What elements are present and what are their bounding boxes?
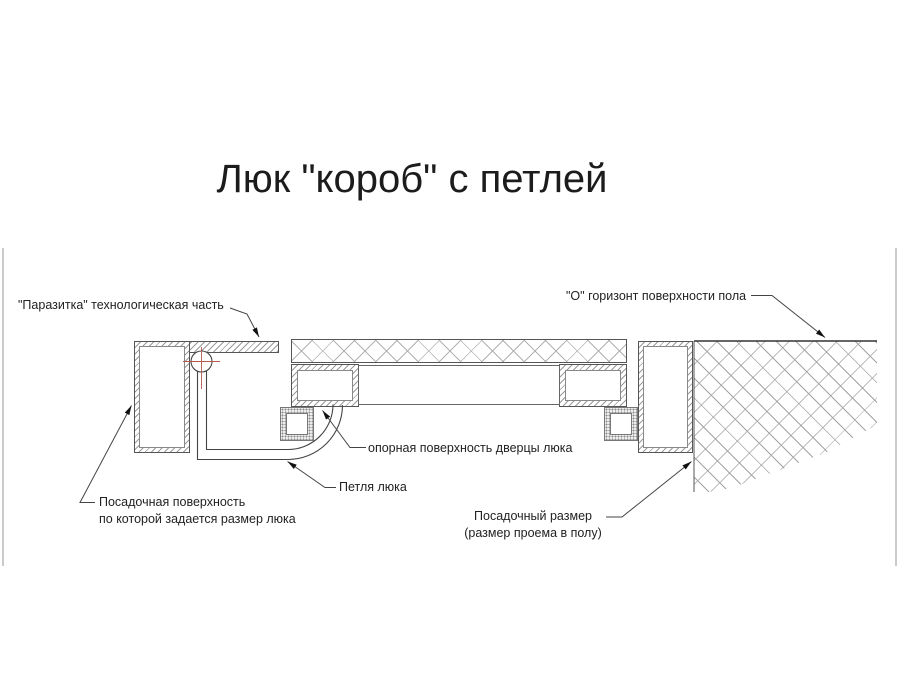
door-frame-box-left bbox=[291, 364, 359, 407]
label-floor-horizon: "О" горизонт поверхности пола bbox=[566, 288, 746, 305]
left-frame-profile bbox=[134, 341, 190, 453]
seal-profile-right bbox=[604, 407, 638, 441]
door-underside-plate bbox=[358, 365, 560, 405]
image-frame-edge-left bbox=[2, 248, 4, 566]
leader-parasitka bbox=[230, 308, 259, 337]
leader-hinge bbox=[288, 462, 337, 488]
label-seating-surface: Посадочная поверхность по которой задает… bbox=[99, 494, 296, 528]
door-frame-box-left-cavity bbox=[297, 370, 353, 401]
seal-profile-right-core bbox=[610, 413, 632, 435]
door-frame-box-right bbox=[559, 364, 627, 407]
label-seating-surface-line2: по которой задается размер люка bbox=[99, 511, 296, 528]
label-seating-size: Посадочный размер (размер проема в полу) bbox=[458, 508, 608, 542]
label-hinge: Петля люка bbox=[339, 479, 407, 496]
seal-profile-left bbox=[280, 407, 314, 441]
label-seating-size-line2: (размер проема в полу) bbox=[458, 525, 608, 542]
left-frame-cavity bbox=[139, 346, 185, 448]
page-title: Люк "короб" с петлей bbox=[216, 157, 607, 202]
label-seating-surface-line1: Посадочная поверхность bbox=[99, 494, 296, 511]
seal-profile-left-core bbox=[286, 413, 308, 435]
door-frame-box-right-cavity bbox=[565, 370, 621, 401]
leader-floor-horizon bbox=[751, 296, 825, 338]
leader-seating-surface bbox=[80, 406, 132, 503]
technical-drawing-page: Люк "короб" с петлей bbox=[0, 0, 900, 700]
hinge-pivot-circle bbox=[191, 351, 212, 372]
door-tile-panel bbox=[291, 339, 627, 363]
right-frame-cavity bbox=[643, 346, 688, 448]
leader-door-support bbox=[323, 411, 367, 448]
right-frame-profile bbox=[638, 341, 693, 453]
label-parasitka: "Паразитка" технологическая часть bbox=[18, 297, 224, 314]
label-door-support: опорная поверхность дверцы люка bbox=[368, 440, 572, 457]
floor-section-hatch bbox=[694, 341, 877, 496]
image-frame-edge-right bbox=[895, 248, 897, 566]
leader-seating-size bbox=[606, 462, 692, 518]
label-seating-size-line1: Посадочный размер bbox=[458, 508, 608, 525]
